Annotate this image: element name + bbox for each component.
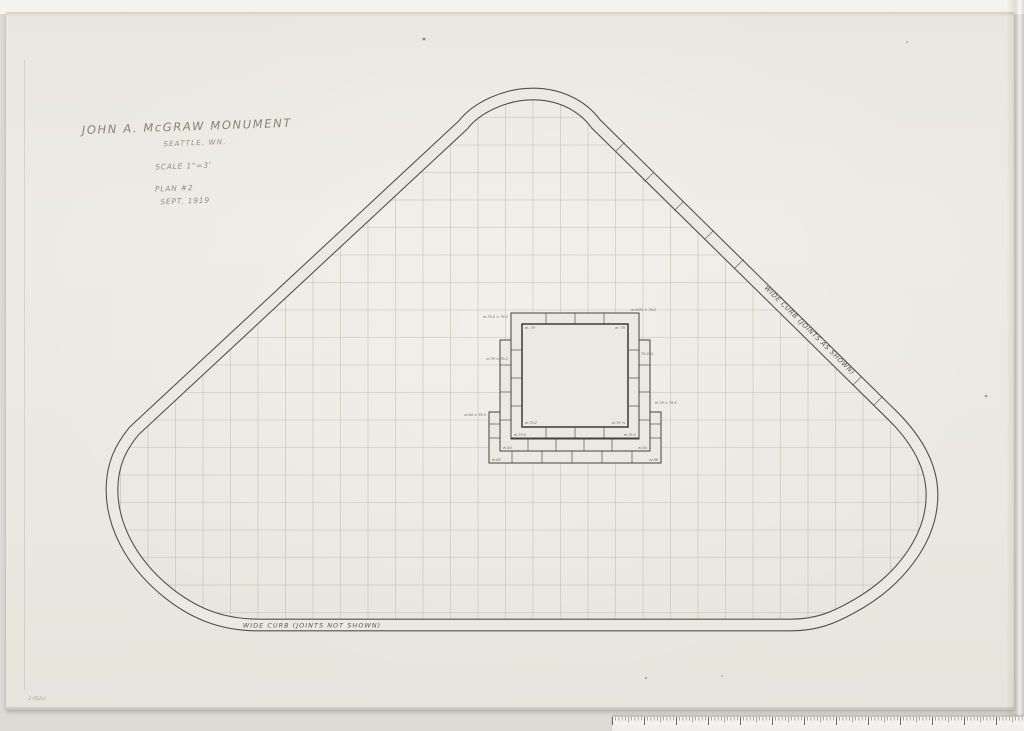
elevation-annotation: el.79 × 79.5 [655, 401, 677, 405]
elevation-annotation: el.84 × 79.5 [464, 413, 486, 417]
date-note: SEPT. 1919 [160, 196, 210, 207]
plan-drawing-svg: WIDE CURB (JOINTS NOT SHOWN) WIDE CURB (… [0, 0, 1024, 730]
elevation-annotation: el. 79 [525, 326, 536, 330]
elevation-annotation: el.79.5 × 79.2 [483, 315, 509, 319]
scale-note: SCALE 1"=3' [155, 161, 212, 172]
drawing-subtitle: SEATTLE, WN. [163, 138, 227, 148]
curb-label-right: WIDE CURB (JOINTS AS SHOWN) [763, 284, 857, 377]
elevation-annotation: el.84 [638, 446, 647, 450]
elevation-annotation: el. 79 [615, 326, 626, 330]
measuring-ruler [612, 716, 1024, 731]
elevation-annotation: el.79.5 [624, 433, 637, 437]
monument-base: el.79.5 × 79.2el. 79el. 79el.89½ × 79.2e… [464, 308, 677, 463]
curb-label-bottom: WIDE CURB (JOINTS NOT SHOWN) [243, 622, 381, 630]
corner-pencil-mark: 2-(62c) [28, 696, 46, 702]
ruler-ticks [612, 717, 1024, 731]
drawing-title: JOHN A. McGRAW MONUMENT [80, 116, 293, 137]
elevation-annotation: el.79 ¾ [612, 421, 626, 425]
elevation-annotation: el.89½ × 79.2 [631, 308, 657, 312]
elevation-annotation: 79.2 ¾ [641, 352, 654, 356]
paper-right-edge-shade [1006, 0, 1024, 730]
elevation-annotation: el.88 [492, 458, 501, 462]
scanned-drawing-photo: { "document": { "title": "JOHN A. McGRAW… [0, 0, 1024, 730]
elevation-annotation: el.84 [503, 446, 512, 450]
elevation-annotation: el.79 × 79.2 [486, 357, 508, 361]
elevation-annotation: el.79.2 [525, 421, 538, 425]
monument-pedestal-square [522, 324, 628, 427]
plan-number-note: PLAN #2 [155, 183, 194, 193]
elevation-annotation: el.79.5 [514, 433, 527, 437]
elevation-annotation: el.88 [649, 458, 658, 462]
title-block: JOHN A. McGRAW MONUMENT SEATTLE, WN. SCA… [80, 116, 295, 209]
